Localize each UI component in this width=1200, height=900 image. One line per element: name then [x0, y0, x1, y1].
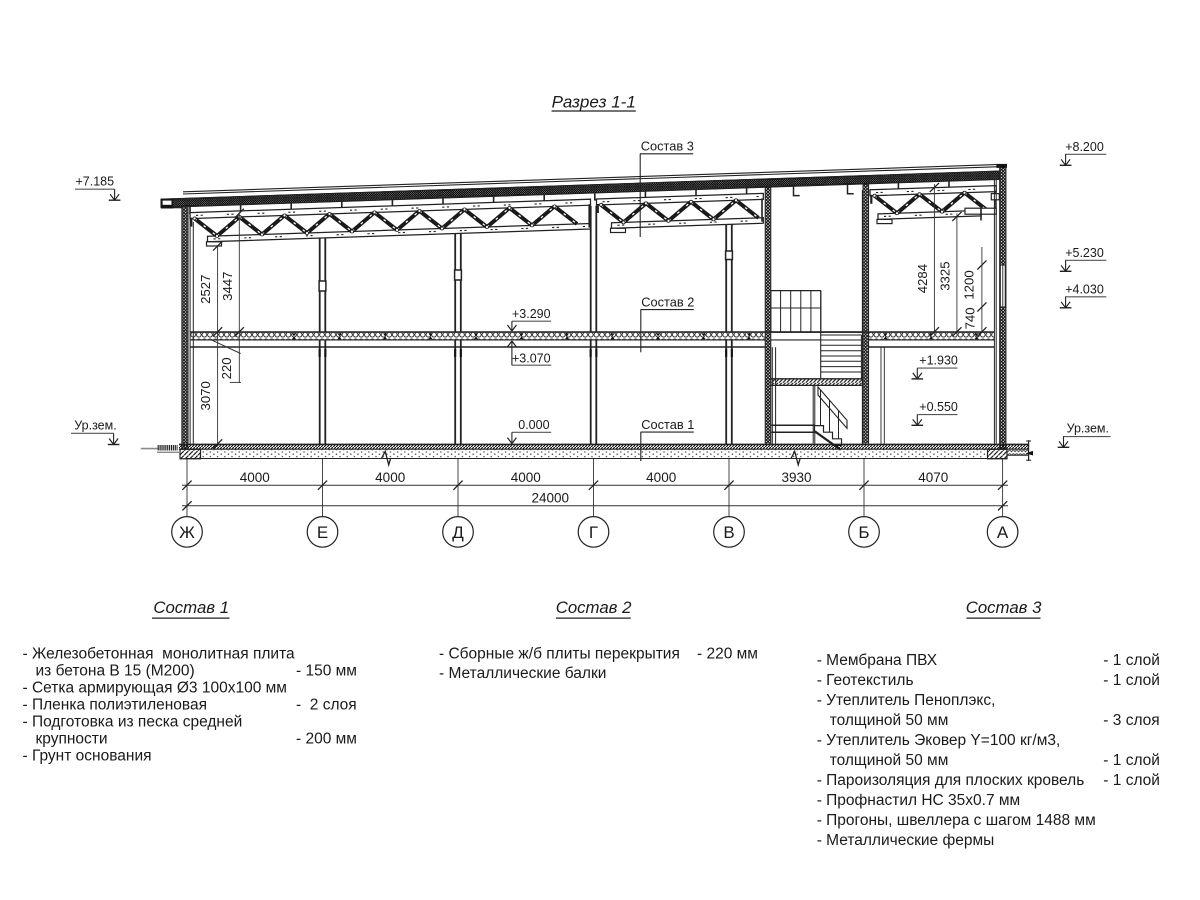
svg-text:- Сетка армирующая Ø3 100х100: - Сетка армирующая Ø3 100х100 мм [23, 680, 287, 697]
svg-text:- Прогоны, швеллера с шагом 14: - Прогоны, швеллера с шагом 1488 мм [817, 812, 1096, 829]
svg-text:- Геотекстиль: - Геотекстиль [817, 672, 914, 689]
svg-text:- Профнастил НС 35х0.7 мм: - Профнастил НС 35х0.7 мм [817, 792, 1021, 809]
svg-text:- 1 слой: - 1 слой [1103, 672, 1160, 689]
svg-text:Состав 1: Состав 1 [153, 598, 229, 617]
svg-text:- 200 мм: - 200 мм [296, 731, 357, 748]
svg-text:- 3 слоя: - 3 слоя [1103, 712, 1159, 729]
svg-text:Состав 3: Состав 3 [966, 598, 1042, 617]
svg-text:из бетона В 15 (М200): из бетона В 15 (М200) [36, 663, 195, 680]
svg-text:Состав 1: Состав 1 [641, 417, 694, 432]
svg-text:2527: 2527 [198, 275, 213, 304]
svg-text:4000: 4000 [375, 470, 405, 485]
svg-text:- Мембрана ПВХ: - Мембрана ПВХ [817, 652, 938, 669]
svg-text:- Пленка полиэтиленовая: - Пленка полиэтиленовая [23, 697, 208, 714]
svg-text:Ж: Ж [179, 523, 195, 542]
svg-text:3930: 3930 [781, 470, 811, 485]
svg-text:- 150 мм: - 150 мм [296, 663, 357, 680]
svg-text:220: 220 [219, 357, 234, 379]
svg-text:- 1 слой: - 1 слой [1103, 752, 1160, 769]
svg-text:740: 740 [962, 307, 977, 329]
svg-text:3325: 3325 [937, 261, 952, 290]
svg-text:Состав 2: Состав 2 [641, 294, 694, 309]
svg-text:+5.230: +5.230 [1065, 246, 1104, 260]
svg-text:- 1 слой: - 1 слой [1103, 652, 1160, 669]
svg-text:+1.930: +1.930 [919, 354, 958, 368]
svg-text:- 1 слой: - 1 слой [1103, 772, 1160, 789]
svg-text:- Железобетонная монолитная п: - Железобетонная монолитная плита [23, 646, 295, 663]
svg-text:Ур.зем.: Ур.зем. [1067, 422, 1109, 436]
svg-text:+8.200: +8.200 [1065, 140, 1104, 154]
svg-text:Разрез 1-1: Разрез 1-1 [552, 93, 636, 112]
svg-text:Г: Г [589, 523, 598, 542]
svg-text:- Утеплитель Пеноплэкс,: - Утеплитель Пеноплэкс, [817, 692, 996, 709]
svg-text:А: А [997, 523, 1009, 542]
svg-text:4070: 4070 [918, 470, 948, 485]
svg-text:Состав 3: Состав 3 [641, 139, 694, 154]
svg-text:0.000: 0.000 [518, 418, 549, 432]
svg-text:Е: Е [317, 523, 328, 542]
svg-text:+4.030: +4.030 [1065, 282, 1104, 296]
svg-text:Состав 2: Состав 2 [556, 598, 632, 617]
svg-text:толщиной 50 мм: толщиной 50 мм [830, 712, 949, 729]
svg-text:- Металлические фермы: - Металлические фермы [817, 832, 995, 849]
svg-text:4000: 4000 [511, 470, 541, 485]
svg-text:Б: Б [858, 523, 869, 542]
svg-text:1200: 1200 [961, 270, 976, 299]
svg-text:- 220 мм: - 220 мм [697, 646, 758, 663]
svg-text:4284: 4284 [915, 264, 930, 293]
svg-text:3070: 3070 [198, 381, 213, 410]
svg-text:+3.070: +3.070 [512, 351, 551, 365]
svg-text:толщиной 50 мм: толщиной 50 мм [830, 752, 949, 769]
svg-text:Ур.зем.: Ур.зем. [74, 418, 116, 432]
svg-text:Д: Д [452, 523, 464, 542]
svg-text:3447: 3447 [220, 272, 235, 301]
svg-text:4000: 4000 [240, 470, 270, 485]
svg-text:- Грунт основания: - Грунт основания [23, 748, 152, 765]
svg-text:- Металлические балки: - Металлические балки [439, 665, 606, 682]
svg-text:+0.550: +0.550 [919, 400, 958, 414]
svg-text:4000: 4000 [646, 470, 676, 485]
svg-text:- 2 слоя: - 2 слоя [296, 697, 357, 714]
svg-text:- Пароизоляция для плоских кро: - Пароизоляция для плоских кровель [817, 772, 1085, 789]
svg-text:- Утеплитель Эковер Y=100 кг/м: - Утеплитель Эковер Y=100 кг/м3, [817, 732, 1061, 749]
svg-text:+7.185: +7.185 [76, 174, 115, 188]
svg-text:В: В [723, 523, 734, 542]
svg-text:+3.290: +3.290 [512, 307, 551, 321]
svg-text:- Подготовка из песка средней: - Подготовка из песка средней [23, 714, 243, 731]
svg-text:- Сборные ж/б плиты перекрытия: - Сборные ж/б плиты перекрытия [439, 646, 680, 663]
svg-text:крупности: крупности [36, 731, 108, 748]
svg-text:24000: 24000 [532, 491, 570, 506]
